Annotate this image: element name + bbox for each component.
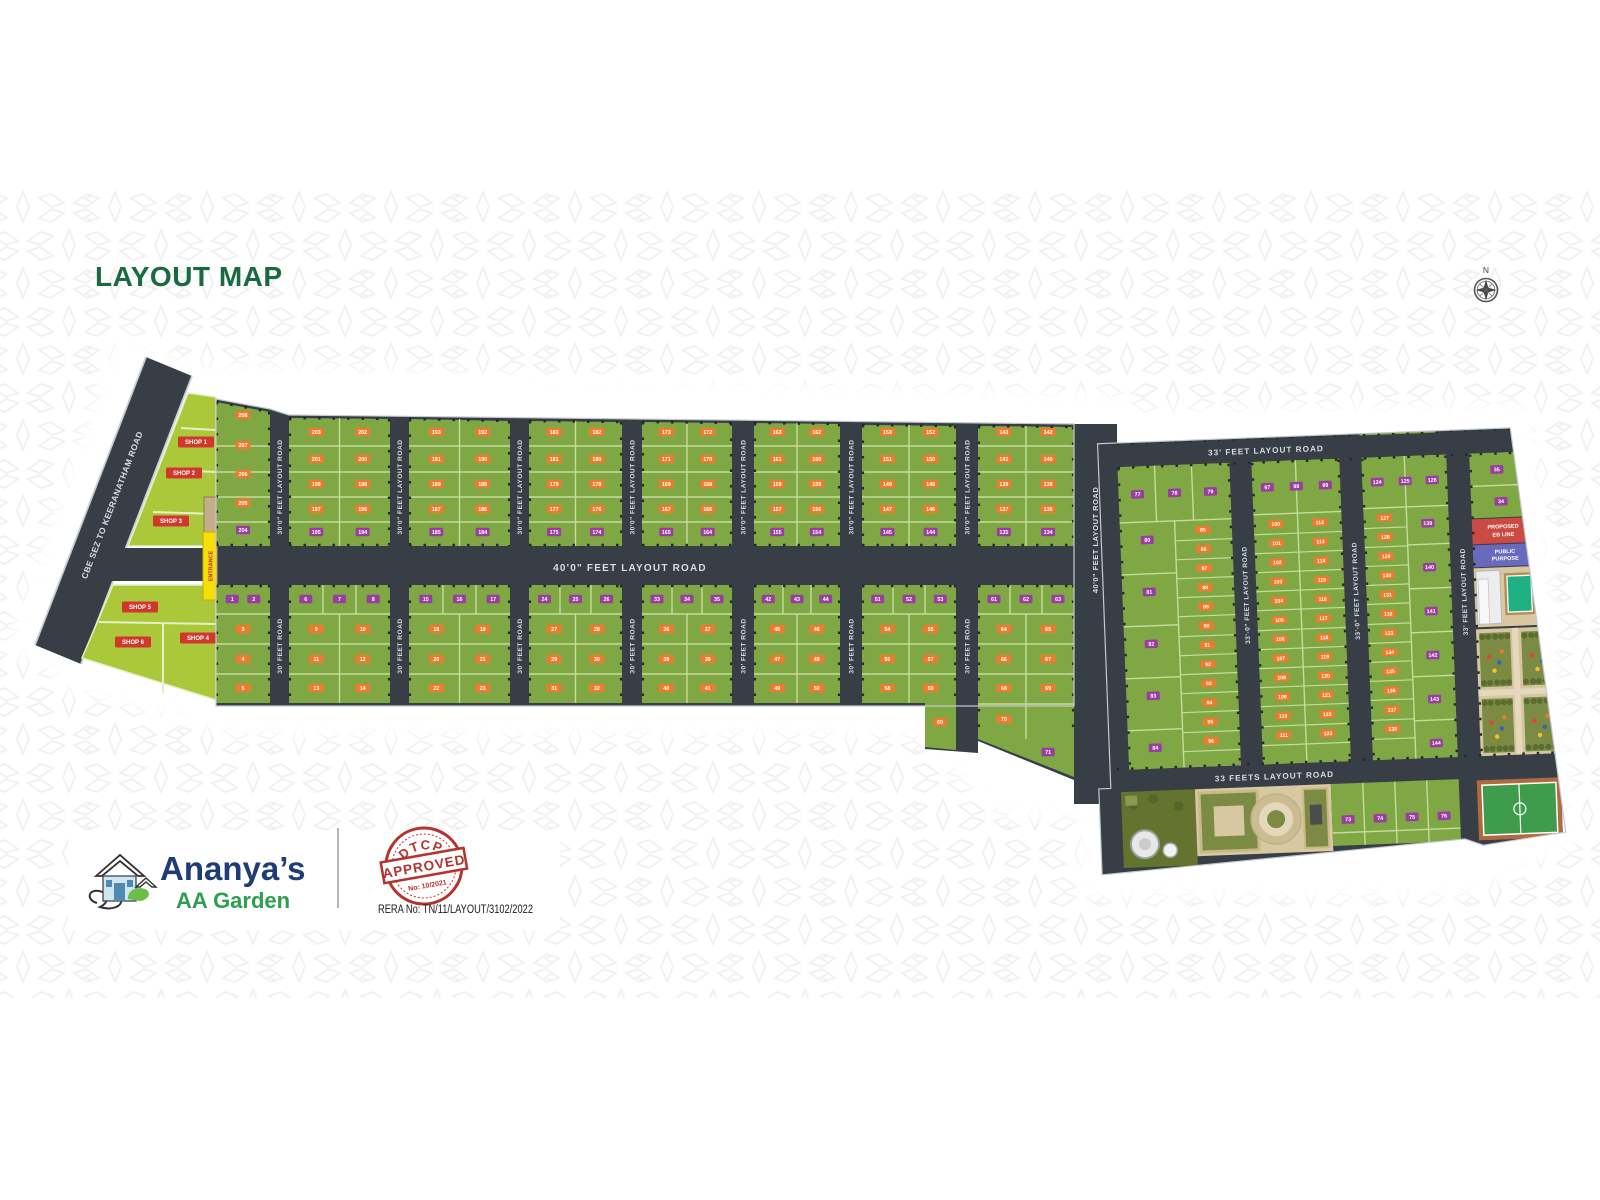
svg-text:50: 50 bbox=[814, 686, 820, 692]
svg-text:154: 154 bbox=[812, 530, 821, 536]
svg-text:143: 143 bbox=[1430, 697, 1439, 703]
svg-text:168: 168 bbox=[703, 482, 712, 488]
svg-text:34: 34 bbox=[1498, 499, 1504, 505]
svg-text:95: 95 bbox=[1207, 719, 1213, 725]
svg-text:30'0" FEET LAYOUT ROAD: 30'0" FEET LAYOUT ROAD bbox=[629, 440, 636, 535]
svg-text:26: 26 bbox=[604, 597, 610, 603]
svg-text:N: N bbox=[1483, 265, 1489, 275]
svg-text:PUBLIC: PUBLIC bbox=[1495, 549, 1516, 556]
svg-text:137: 137 bbox=[999, 507, 1008, 513]
svg-text:36: 36 bbox=[663, 627, 669, 633]
svg-text:141: 141 bbox=[999, 457, 1008, 463]
svg-text:98: 98 bbox=[1293, 484, 1299, 490]
svg-text:189: 189 bbox=[432, 482, 441, 488]
svg-text:69: 69 bbox=[1045, 686, 1051, 692]
svg-text:99: 99 bbox=[1322, 483, 1328, 489]
svg-text:2: 2 bbox=[252, 597, 255, 603]
svg-text:Ananya’s: Ananya’s bbox=[160, 850, 306, 887]
svg-text:171: 171 bbox=[662, 457, 671, 463]
svg-text:155: 155 bbox=[773, 530, 782, 536]
svg-text:198: 198 bbox=[358, 482, 367, 488]
svg-text:46: 46 bbox=[814, 627, 820, 633]
svg-text:162: 162 bbox=[812, 430, 821, 436]
svg-text:35: 35 bbox=[714, 597, 720, 603]
svg-text:123: 123 bbox=[1323, 731, 1332, 737]
svg-text:5: 5 bbox=[242, 686, 245, 692]
svg-text:10: 10 bbox=[360, 627, 366, 633]
svg-text:112: 112 bbox=[1315, 520, 1324, 526]
svg-text:91: 91 bbox=[1204, 643, 1210, 649]
svg-text:135: 135 bbox=[1386, 669, 1395, 675]
svg-text:144: 144 bbox=[1432, 741, 1441, 747]
svg-text:137: 137 bbox=[1388, 707, 1397, 713]
svg-text:203: 203 bbox=[312, 430, 321, 436]
svg-text:65: 65 bbox=[1045, 627, 1051, 633]
svg-text:201: 201 bbox=[312, 457, 321, 463]
svg-text:184: 184 bbox=[478, 530, 487, 536]
svg-text:124: 124 bbox=[1373, 480, 1382, 486]
svg-text:16: 16 bbox=[457, 597, 463, 603]
svg-text:25: 25 bbox=[573, 597, 579, 603]
svg-text:138: 138 bbox=[1388, 727, 1397, 733]
svg-text:130: 130 bbox=[1382, 573, 1391, 579]
svg-text:183: 183 bbox=[550, 430, 559, 436]
svg-text:PROPOSED: PROPOSED bbox=[1487, 524, 1518, 531]
svg-text:40'0" FEET LAYOUT ROAD: 40'0" FEET LAYOUT ROAD bbox=[553, 563, 707, 574]
svg-text:3: 3 bbox=[242, 627, 245, 633]
svg-text:6: 6 bbox=[304, 597, 307, 603]
svg-text:30'0" FEET LAYOUT ROAD: 30'0" FEET LAYOUT ROAD bbox=[517, 440, 524, 535]
svg-text:128: 128 bbox=[1381, 535, 1390, 541]
svg-text:188: 188 bbox=[478, 482, 487, 488]
svg-text:62: 62 bbox=[1023, 597, 1029, 603]
svg-text:202: 202 bbox=[358, 430, 367, 436]
svg-text:54: 54 bbox=[884, 627, 890, 633]
svg-text:45: 45 bbox=[774, 627, 780, 633]
svg-text:56: 56 bbox=[884, 657, 890, 663]
svg-text:19: 19 bbox=[480, 627, 486, 633]
svg-text:35: 35 bbox=[1494, 467, 1500, 473]
svg-text:30' FEET ROAD: 30' FEET ROAD bbox=[848, 618, 855, 673]
svg-text:140: 140 bbox=[1044, 457, 1053, 463]
svg-text:195: 195 bbox=[312, 530, 321, 536]
svg-text:71: 71 bbox=[1045, 750, 1051, 756]
svg-text:106: 106 bbox=[1276, 637, 1285, 643]
svg-text:166: 166 bbox=[703, 507, 712, 513]
svg-text:22: 22 bbox=[433, 686, 439, 692]
svg-text:EB LINE: EB LINE bbox=[1492, 532, 1514, 539]
svg-text:138: 138 bbox=[1044, 482, 1053, 488]
svg-text:17: 17 bbox=[490, 597, 496, 603]
svg-text:32: 32 bbox=[594, 686, 600, 692]
svg-text:177: 177 bbox=[550, 507, 559, 513]
svg-text:76: 76 bbox=[1441, 813, 1447, 819]
svg-text:49: 49 bbox=[774, 686, 780, 692]
svg-text:37: 37 bbox=[705, 627, 711, 633]
svg-text:173: 173 bbox=[662, 430, 671, 436]
svg-text:104: 104 bbox=[1274, 598, 1283, 604]
svg-text:117: 117 bbox=[1319, 616, 1328, 622]
svg-text:11: 11 bbox=[313, 657, 319, 663]
svg-text:136: 136 bbox=[1387, 688, 1396, 694]
svg-text:178: 178 bbox=[592, 482, 601, 488]
svg-text:79: 79 bbox=[1207, 489, 1213, 495]
svg-text:182: 182 bbox=[592, 430, 601, 436]
svg-text:42: 42 bbox=[765, 597, 771, 603]
svg-text:38: 38 bbox=[663, 657, 669, 663]
svg-text:181: 181 bbox=[550, 457, 559, 463]
svg-text:101: 101 bbox=[1272, 541, 1281, 547]
svg-text:AA Garden: AA Garden bbox=[176, 888, 290, 913]
svg-text:53: 53 bbox=[937, 597, 943, 603]
svg-text:47: 47 bbox=[774, 657, 780, 663]
svg-text:159: 159 bbox=[773, 482, 782, 488]
svg-text:78: 78 bbox=[1171, 491, 1177, 497]
svg-text:30'0" FEET LAYOUT ROAD: 30'0" FEET LAYOUT ROAD bbox=[277, 440, 284, 535]
svg-text:190: 190 bbox=[478, 457, 487, 463]
svg-text:141: 141 bbox=[1427, 609, 1436, 615]
svg-text:100: 100 bbox=[1271, 522, 1280, 528]
svg-text:14: 14 bbox=[360, 686, 366, 692]
svg-text:80: 80 bbox=[1144, 538, 1150, 544]
svg-text:134: 134 bbox=[1044, 530, 1053, 536]
svg-text:57: 57 bbox=[928, 657, 934, 663]
svg-text:110: 110 bbox=[1279, 714, 1288, 720]
svg-text:30' FEET ROAD: 30' FEET ROAD bbox=[397, 618, 404, 673]
svg-text:PURPOSE: PURPOSE bbox=[1492, 556, 1519, 563]
svg-text:68: 68 bbox=[1001, 686, 1007, 692]
svg-text:48: 48 bbox=[814, 657, 820, 663]
svg-text:81: 81 bbox=[1146, 590, 1152, 596]
svg-text:149: 149 bbox=[883, 482, 892, 488]
svg-text:148: 148 bbox=[926, 482, 935, 488]
svg-text:75: 75 bbox=[1409, 815, 1415, 821]
svg-text:192: 192 bbox=[478, 430, 487, 436]
svg-text:158: 158 bbox=[812, 482, 821, 488]
svg-text:206: 206 bbox=[239, 472, 248, 478]
svg-text:4: 4 bbox=[242, 657, 245, 663]
svg-text:64: 64 bbox=[1001, 627, 1007, 633]
svg-text:8: 8 bbox=[372, 597, 375, 603]
svg-text:175: 175 bbox=[550, 530, 559, 536]
svg-text:208: 208 bbox=[239, 413, 248, 419]
svg-text:174: 174 bbox=[592, 530, 601, 536]
svg-text:136: 136 bbox=[1044, 507, 1053, 513]
svg-text:27: 27 bbox=[551, 627, 557, 633]
svg-text:SHOP 5: SHOP 5 bbox=[129, 605, 152, 611]
svg-text:191: 191 bbox=[432, 457, 441, 463]
svg-text:43: 43 bbox=[794, 597, 800, 603]
svg-text:187: 187 bbox=[432, 507, 441, 513]
svg-text:30'0" FEET LAYOUT ROAD: 30'0" FEET LAYOUT ROAD bbox=[397, 440, 404, 535]
svg-text:200: 200 bbox=[358, 457, 367, 463]
svg-text:172: 172 bbox=[703, 430, 712, 436]
svg-text:67: 67 bbox=[1045, 657, 1051, 663]
svg-text:41: 41 bbox=[705, 686, 711, 692]
svg-text:97: 97 bbox=[1264, 485, 1270, 491]
svg-text:51: 51 bbox=[875, 597, 881, 603]
svg-text:122: 122 bbox=[1323, 712, 1332, 718]
svg-text:118: 118 bbox=[1320, 635, 1329, 641]
svg-text:144: 144 bbox=[926, 530, 935, 536]
svg-text:160: 160 bbox=[812, 457, 821, 463]
svg-text:RERA No: TN/11/LAYOUT/3102/202: RERA No: TN/11/LAYOUT/3102/2022 bbox=[378, 904, 533, 916]
svg-text:92: 92 bbox=[1205, 662, 1211, 668]
svg-text:115: 115 bbox=[1318, 578, 1327, 584]
svg-text:18: 18 bbox=[433, 627, 439, 633]
svg-text:30'0" FEET LAYOUT ROAD: 30'0" FEET LAYOUT ROAD bbox=[740, 440, 747, 535]
svg-text:196: 196 bbox=[358, 507, 367, 513]
svg-text:105: 105 bbox=[1275, 618, 1284, 624]
svg-text:30: 30 bbox=[594, 657, 600, 663]
svg-text:114: 114 bbox=[1317, 558, 1326, 564]
svg-text:40'0" FEET LAYOUT ROAD: 40'0" FEET LAYOUT ROAD bbox=[1091, 487, 1100, 594]
svg-text:120: 120 bbox=[1321, 673, 1330, 679]
svg-text:142: 142 bbox=[1428, 653, 1437, 659]
svg-text:111: 111 bbox=[1280, 733, 1288, 739]
svg-text:135: 135 bbox=[999, 530, 1008, 536]
svg-text:24: 24 bbox=[542, 597, 548, 603]
svg-text:88: 88 bbox=[1202, 585, 1208, 591]
svg-text:LAYOUT MAP: LAYOUT MAP bbox=[95, 261, 283, 292]
svg-text:134: 134 bbox=[1385, 650, 1394, 656]
svg-text:131: 131 bbox=[1383, 592, 1392, 598]
svg-text:163: 163 bbox=[773, 430, 782, 436]
svg-text:85: 85 bbox=[1200, 528, 1206, 534]
svg-text:108: 108 bbox=[1277, 675, 1286, 681]
svg-text:30' FEET ROAD: 30' FEET ROAD bbox=[964, 618, 971, 673]
svg-text:157: 157 bbox=[773, 507, 782, 513]
svg-text:30' FEET ROAD: 30' FEET ROAD bbox=[277, 618, 284, 673]
svg-text:30'0" FEET LAYOUT ROAD: 30'0" FEET LAYOUT ROAD bbox=[964, 440, 971, 535]
svg-text:84: 84 bbox=[1152, 746, 1158, 752]
svg-text:34: 34 bbox=[684, 597, 690, 603]
svg-text:132: 132 bbox=[1384, 611, 1393, 617]
svg-text:180: 180 bbox=[592, 457, 601, 463]
svg-text:SHOP 3: SHOP 3 bbox=[160, 519, 183, 525]
svg-text:139: 139 bbox=[999, 482, 1008, 488]
svg-text:87: 87 bbox=[1201, 566, 1207, 572]
svg-text:39: 39 bbox=[705, 657, 711, 663]
svg-text:59: 59 bbox=[928, 686, 934, 692]
svg-text:21: 21 bbox=[480, 657, 486, 663]
svg-text:52: 52 bbox=[906, 597, 912, 603]
svg-text:103: 103 bbox=[1274, 579, 1283, 585]
svg-text:161: 161 bbox=[773, 457, 782, 463]
svg-text:205: 205 bbox=[239, 501, 248, 507]
svg-text:164: 164 bbox=[703, 530, 712, 536]
svg-text:140: 140 bbox=[1425, 565, 1434, 571]
svg-text:153: 153 bbox=[883, 430, 892, 436]
svg-text:125: 125 bbox=[1401, 479, 1410, 485]
svg-text:146: 146 bbox=[926, 507, 935, 513]
svg-text:SHOP 2: SHOP 2 bbox=[173, 471, 196, 477]
svg-text:90: 90 bbox=[1204, 623, 1210, 629]
svg-text:119: 119 bbox=[1321, 654, 1330, 660]
svg-text:58: 58 bbox=[884, 686, 890, 692]
svg-text:SHOP 1: SHOP 1 bbox=[185, 440, 208, 446]
svg-text:142: 142 bbox=[1044, 430, 1053, 436]
svg-text:61: 61 bbox=[991, 597, 997, 603]
svg-text:70: 70 bbox=[1001, 717, 1007, 723]
svg-text:SHOP 4: SHOP 4 bbox=[187, 636, 210, 642]
svg-text:77: 77 bbox=[1134, 492, 1140, 498]
svg-text:30'0" FEET LAYOUT ROAD: 30'0" FEET LAYOUT ROAD bbox=[848, 440, 855, 535]
svg-text:109: 109 bbox=[1278, 694, 1287, 700]
svg-text:30' FEET ROAD: 30' FEET ROAD bbox=[740, 618, 747, 673]
svg-text:185: 185 bbox=[432, 530, 441, 536]
svg-text:55: 55 bbox=[928, 627, 934, 633]
svg-text:93: 93 bbox=[1206, 681, 1212, 687]
svg-text:20: 20 bbox=[433, 657, 439, 663]
svg-text:169: 169 bbox=[662, 482, 671, 488]
svg-text:12: 12 bbox=[360, 657, 366, 663]
svg-text:199: 199 bbox=[312, 482, 321, 488]
svg-text:ENTRANCE: ENTRANCE bbox=[209, 550, 215, 581]
svg-text:139: 139 bbox=[1423, 521, 1432, 527]
svg-text:151: 151 bbox=[883, 457, 892, 463]
svg-text:147: 147 bbox=[883, 507, 892, 513]
svg-text:15: 15 bbox=[423, 597, 429, 603]
svg-text:1: 1 bbox=[231, 597, 234, 603]
svg-text:186: 186 bbox=[478, 507, 487, 513]
svg-text:156: 156 bbox=[812, 507, 821, 513]
svg-text:170: 170 bbox=[703, 457, 712, 463]
svg-text:96: 96 bbox=[1208, 739, 1214, 745]
svg-text:31: 31 bbox=[551, 686, 557, 692]
svg-text:194: 194 bbox=[358, 530, 367, 536]
svg-text:127: 127 bbox=[1380, 516, 1389, 522]
svg-text:207: 207 bbox=[239, 443, 248, 449]
svg-text:145: 145 bbox=[883, 530, 892, 536]
svg-text:167: 167 bbox=[662, 507, 671, 513]
svg-text:152: 152 bbox=[926, 430, 935, 436]
svg-text:40: 40 bbox=[663, 686, 669, 692]
svg-text:63: 63 bbox=[1055, 597, 1061, 603]
svg-text:133: 133 bbox=[1385, 631, 1394, 637]
svg-text:60: 60 bbox=[937, 720, 943, 726]
svg-text:165: 165 bbox=[662, 530, 671, 536]
svg-text:82: 82 bbox=[1148, 642, 1154, 648]
svg-text:179: 179 bbox=[550, 482, 559, 488]
svg-text:107: 107 bbox=[1277, 656, 1286, 662]
svg-text:30' FEET ROAD: 30' FEET ROAD bbox=[517, 618, 524, 673]
svg-text:121: 121 bbox=[1322, 693, 1331, 699]
svg-text:197: 197 bbox=[312, 507, 321, 513]
svg-text:23: 23 bbox=[480, 686, 486, 692]
svg-text:89: 89 bbox=[1203, 604, 1209, 610]
svg-text:66: 66 bbox=[1001, 657, 1007, 663]
svg-text:143: 143 bbox=[999, 430, 1008, 436]
svg-text:13: 13 bbox=[313, 686, 319, 692]
svg-text:9: 9 bbox=[315, 627, 318, 633]
svg-text:SHOP 6: SHOP 6 bbox=[122, 640, 145, 646]
svg-text:30' FEET ROAD: 30' FEET ROAD bbox=[629, 618, 636, 673]
svg-text:28: 28 bbox=[594, 627, 600, 633]
svg-text:73: 73 bbox=[1345, 817, 1351, 823]
svg-text:74: 74 bbox=[1377, 816, 1383, 822]
svg-text:29: 29 bbox=[551, 657, 557, 663]
svg-text:193: 193 bbox=[432, 430, 441, 436]
svg-text:176: 176 bbox=[592, 507, 601, 513]
svg-text:86: 86 bbox=[1201, 547, 1207, 553]
svg-text:33: 33 bbox=[654, 597, 660, 603]
svg-text:94: 94 bbox=[1207, 700, 1213, 706]
svg-text:129: 129 bbox=[1382, 554, 1391, 560]
svg-text:83: 83 bbox=[1150, 694, 1156, 700]
svg-text:113: 113 bbox=[1316, 539, 1325, 545]
svg-text:44: 44 bbox=[823, 597, 829, 603]
svg-text:204: 204 bbox=[239, 528, 248, 534]
svg-text:126: 126 bbox=[1428, 478, 1437, 484]
svg-text:102: 102 bbox=[1273, 560, 1282, 566]
svg-text:150: 150 bbox=[926, 457, 935, 463]
svg-text:7: 7 bbox=[338, 597, 341, 603]
svg-text:116: 116 bbox=[1318, 597, 1327, 603]
